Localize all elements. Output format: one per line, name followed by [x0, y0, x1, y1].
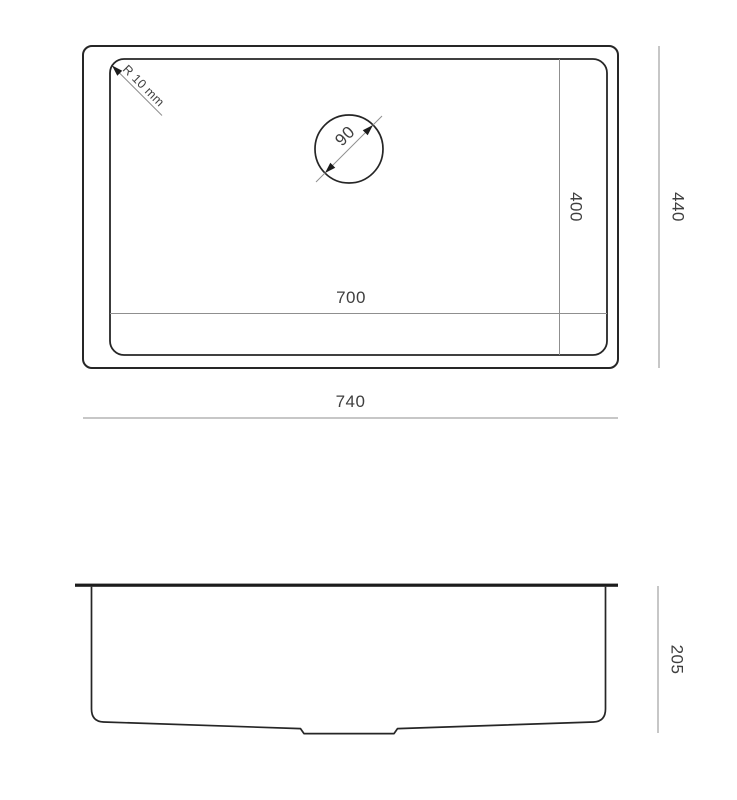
corner-radius-label: R 10 mm: [120, 62, 167, 109]
side-view: 205: [75, 584, 687, 734]
height-label: 205: [668, 645, 687, 675]
inner-width-label: 700: [336, 288, 366, 307]
drawing-svg: 90 R 10 mm 700 400 740 440 205: [0, 0, 737, 800]
drain-diameter-label: 90: [331, 122, 359, 150]
inner-depth-label: 400: [567, 192, 586, 222]
top-view: 90 R 10 mm 700 400 740 440: [83, 46, 688, 418]
sink-inner-outline: [110, 59, 607, 355]
side-rim-line: [75, 584, 618, 587]
outer-depth-label: 440: [669, 192, 688, 222]
outer-width-label: 740: [336, 392, 366, 411]
side-bowl-profile: [92, 587, 606, 734]
sink-outer-outline: [83, 46, 618, 368]
sink-dimension-drawing: 90 R 10 mm 700 400 740 440 205: [0, 0, 737, 800]
